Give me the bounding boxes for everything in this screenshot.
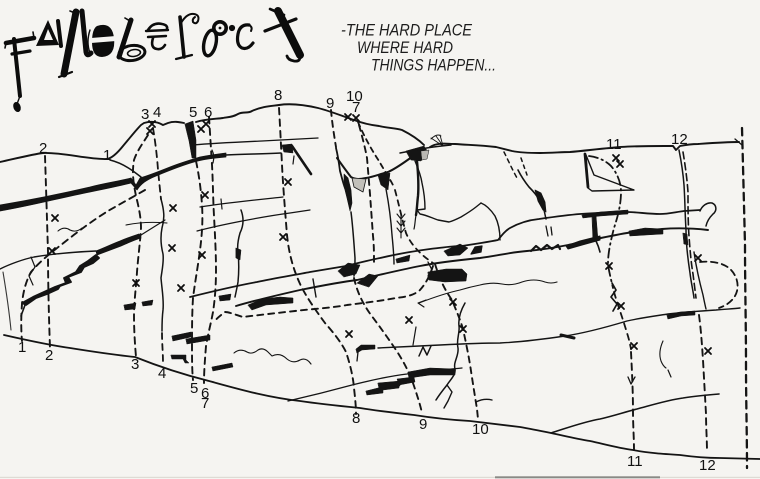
svg-text:11: 11 xyxy=(606,136,622,153)
svg-text:3: 3 xyxy=(141,106,149,123)
svg-text:10: 10 xyxy=(472,421,489,438)
svg-text:WHERE HARD: WHERE HARD xyxy=(357,38,453,57)
svg-text:1: 1 xyxy=(103,147,111,164)
svg-text:7: 7 xyxy=(352,99,360,116)
svg-text:5: 5 xyxy=(189,104,197,121)
svg-text:THINGS HAPPEN...: THINGS HAPPEN... xyxy=(371,56,496,75)
svg-text:7: 7 xyxy=(201,395,209,412)
svg-text:2: 2 xyxy=(45,347,53,364)
svg-text:4: 4 xyxy=(158,365,166,382)
svg-text:-THE HARD PLACE: -THE HARD PLACE xyxy=(341,21,473,40)
svg-text:4: 4 xyxy=(153,104,161,121)
svg-text:9: 9 xyxy=(326,95,334,112)
svg-text:12: 12 xyxy=(699,457,716,474)
svg-text:3: 3 xyxy=(131,356,139,373)
svg-text:12: 12 xyxy=(671,131,688,148)
svg-text:5: 5 xyxy=(190,380,198,397)
svg-text:8: 8 xyxy=(352,410,360,427)
svg-text:2: 2 xyxy=(39,140,47,157)
svg-text:9: 9 xyxy=(419,416,427,433)
svg-text:8: 8 xyxy=(274,87,282,104)
svg-text:1: 1 xyxy=(18,339,26,356)
svg-text:11: 11 xyxy=(627,453,643,470)
svg-text:6: 6 xyxy=(204,104,212,121)
